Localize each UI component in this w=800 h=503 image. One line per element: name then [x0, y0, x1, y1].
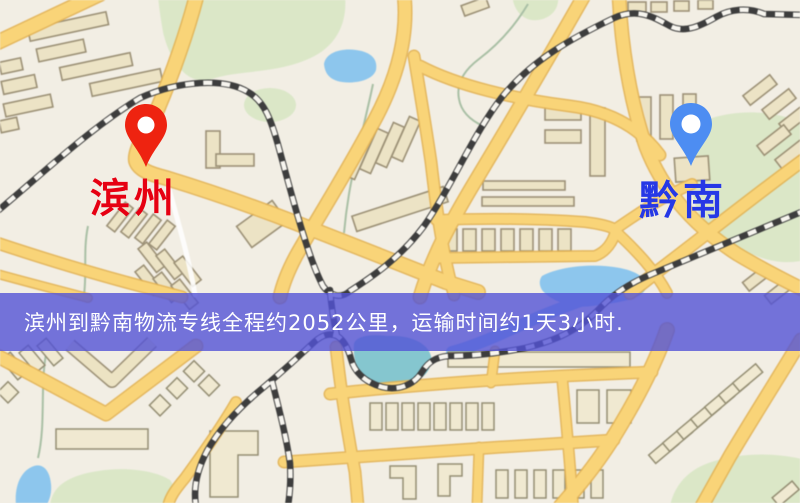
- pin-icon: [122, 101, 170, 171]
- origin-label: 滨州: [90, 179, 178, 219]
- pin-hole: [138, 117, 155, 134]
- destination-marker-pin[interactable]: [667, 100, 715, 170]
- destination-label: 黔南: [639, 181, 727, 221]
- route-info-banner: 滨州到黔南物流专线全程约2052公里，运输时间约1天3小时.: [0, 293, 800, 351]
- origin-marker-pin[interactable]: [122, 101, 170, 171]
- pin-body: [670, 103, 712, 166]
- pin-icon: [667, 100, 715, 170]
- map-canvas[interactable]: [0, 0, 800, 503]
- map-screenshot: 滨州到黔南物流专线全程约2052公里，运输时间约1天3小时. 滨州 黔南: [0, 0, 800, 503]
- route-info-text: 滨州到黔南物流专线全程约2052公里，运输时间约1天3小时.: [0, 307, 624, 337]
- pin-hole: [682, 115, 701, 134]
- pin-body: [125, 104, 167, 167]
